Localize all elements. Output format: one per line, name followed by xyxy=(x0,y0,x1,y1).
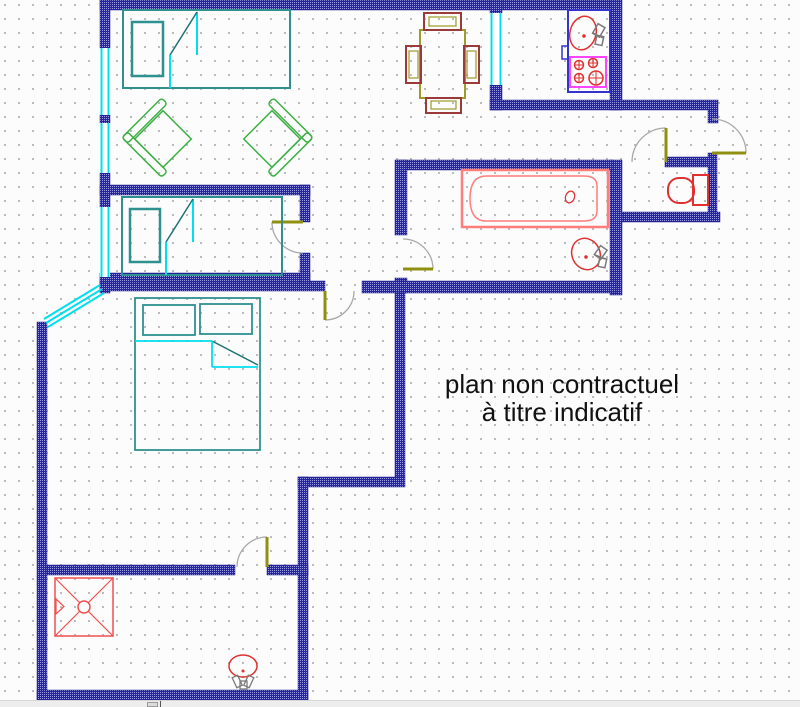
kitchen-sink-shape xyxy=(582,34,586,38)
window[interactable] xyxy=(100,48,110,115)
wall-segment[interactable] xyxy=(100,185,310,195)
wall-segment[interactable] xyxy=(100,0,110,48)
floor-plan-svg[interactable] xyxy=(0,0,800,700)
plan-annotation-line2: à titre indicatif xyxy=(352,398,772,426)
wall-segment[interactable] xyxy=(610,0,622,110)
window[interactable] xyxy=(490,13,502,85)
scroll-handle[interactable] xyxy=(147,702,158,707)
wall-segment[interactable] xyxy=(708,110,718,123)
wall-segment[interactable] xyxy=(490,0,502,13)
plan-annotation: plan non contractuel à titre indicatif xyxy=(352,370,772,426)
wall-segment[interactable] xyxy=(300,185,310,222)
wall-segment[interactable] xyxy=(362,281,617,293)
plan-annotation-line1: plan non contractuel xyxy=(352,370,772,398)
wall-segment[interactable] xyxy=(100,0,620,10)
wall-segment[interactable] xyxy=(47,565,235,575)
wall-segment[interactable] xyxy=(37,322,47,700)
wall-segment[interactable] xyxy=(300,253,310,283)
wall-segment[interactable] xyxy=(615,212,720,222)
wall-segment[interactable] xyxy=(298,477,405,487)
wall-segment[interactable] xyxy=(267,565,308,575)
shower-room-washbasin-shape xyxy=(242,670,245,673)
wall-segment[interactable] xyxy=(398,160,613,170)
text-cursor xyxy=(160,701,161,707)
drawing-canvas[interactable]: plan non contractuel à titre indicatif xyxy=(0,0,800,707)
window[interactable] xyxy=(100,123,110,173)
wall-segment[interactable] xyxy=(490,100,718,110)
wall-segment[interactable] xyxy=(37,690,308,700)
wall-segment[interactable] xyxy=(100,115,110,123)
wall-segment[interactable] xyxy=(665,157,712,167)
window[interactable] xyxy=(100,207,110,277)
wall-segment[interactable] xyxy=(298,477,308,700)
wall-segment[interactable] xyxy=(395,160,407,235)
bathroom-washbasin-shape xyxy=(584,255,588,259)
canvas-bottom-strip xyxy=(0,700,800,707)
wall-segment[interactable] xyxy=(610,160,622,295)
shower-shape xyxy=(78,601,90,613)
